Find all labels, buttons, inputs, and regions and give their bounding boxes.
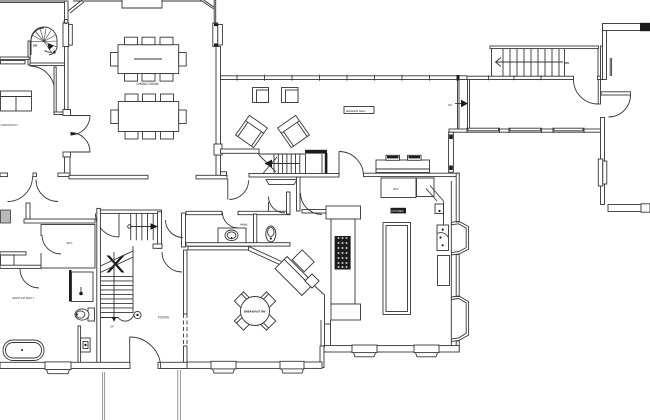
svg-text:DN: DN <box>448 103 452 107</box>
svg-text:FOYER: FOYER <box>158 316 170 320</box>
svg-text:DINING ROOM: DINING ROOM <box>137 82 159 86</box>
svg-text:KITCHEN: KITCHEN <box>392 210 404 213</box>
svg-text:GARDEN HALL: GARDEN HALL <box>346 109 366 113</box>
svg-text:DN: DN <box>33 44 37 48</box>
svg-text:REF: REF <box>393 187 399 191</box>
svg-text:GROOM RLY: GROOM RLY <box>1 123 19 127</box>
svg-text:POOL: POOL <box>241 224 249 227</box>
svg-text:MASTER BATH: MASTER BATH <box>13 296 34 300</box>
svg-text:DN: DN <box>565 61 569 65</box>
svg-text:UP: UP <box>110 325 114 329</box>
svg-text:BREAKFAST RM: BREAKFAST RM <box>244 311 266 314</box>
svg-text:W.C.: W.C. <box>67 241 74 245</box>
